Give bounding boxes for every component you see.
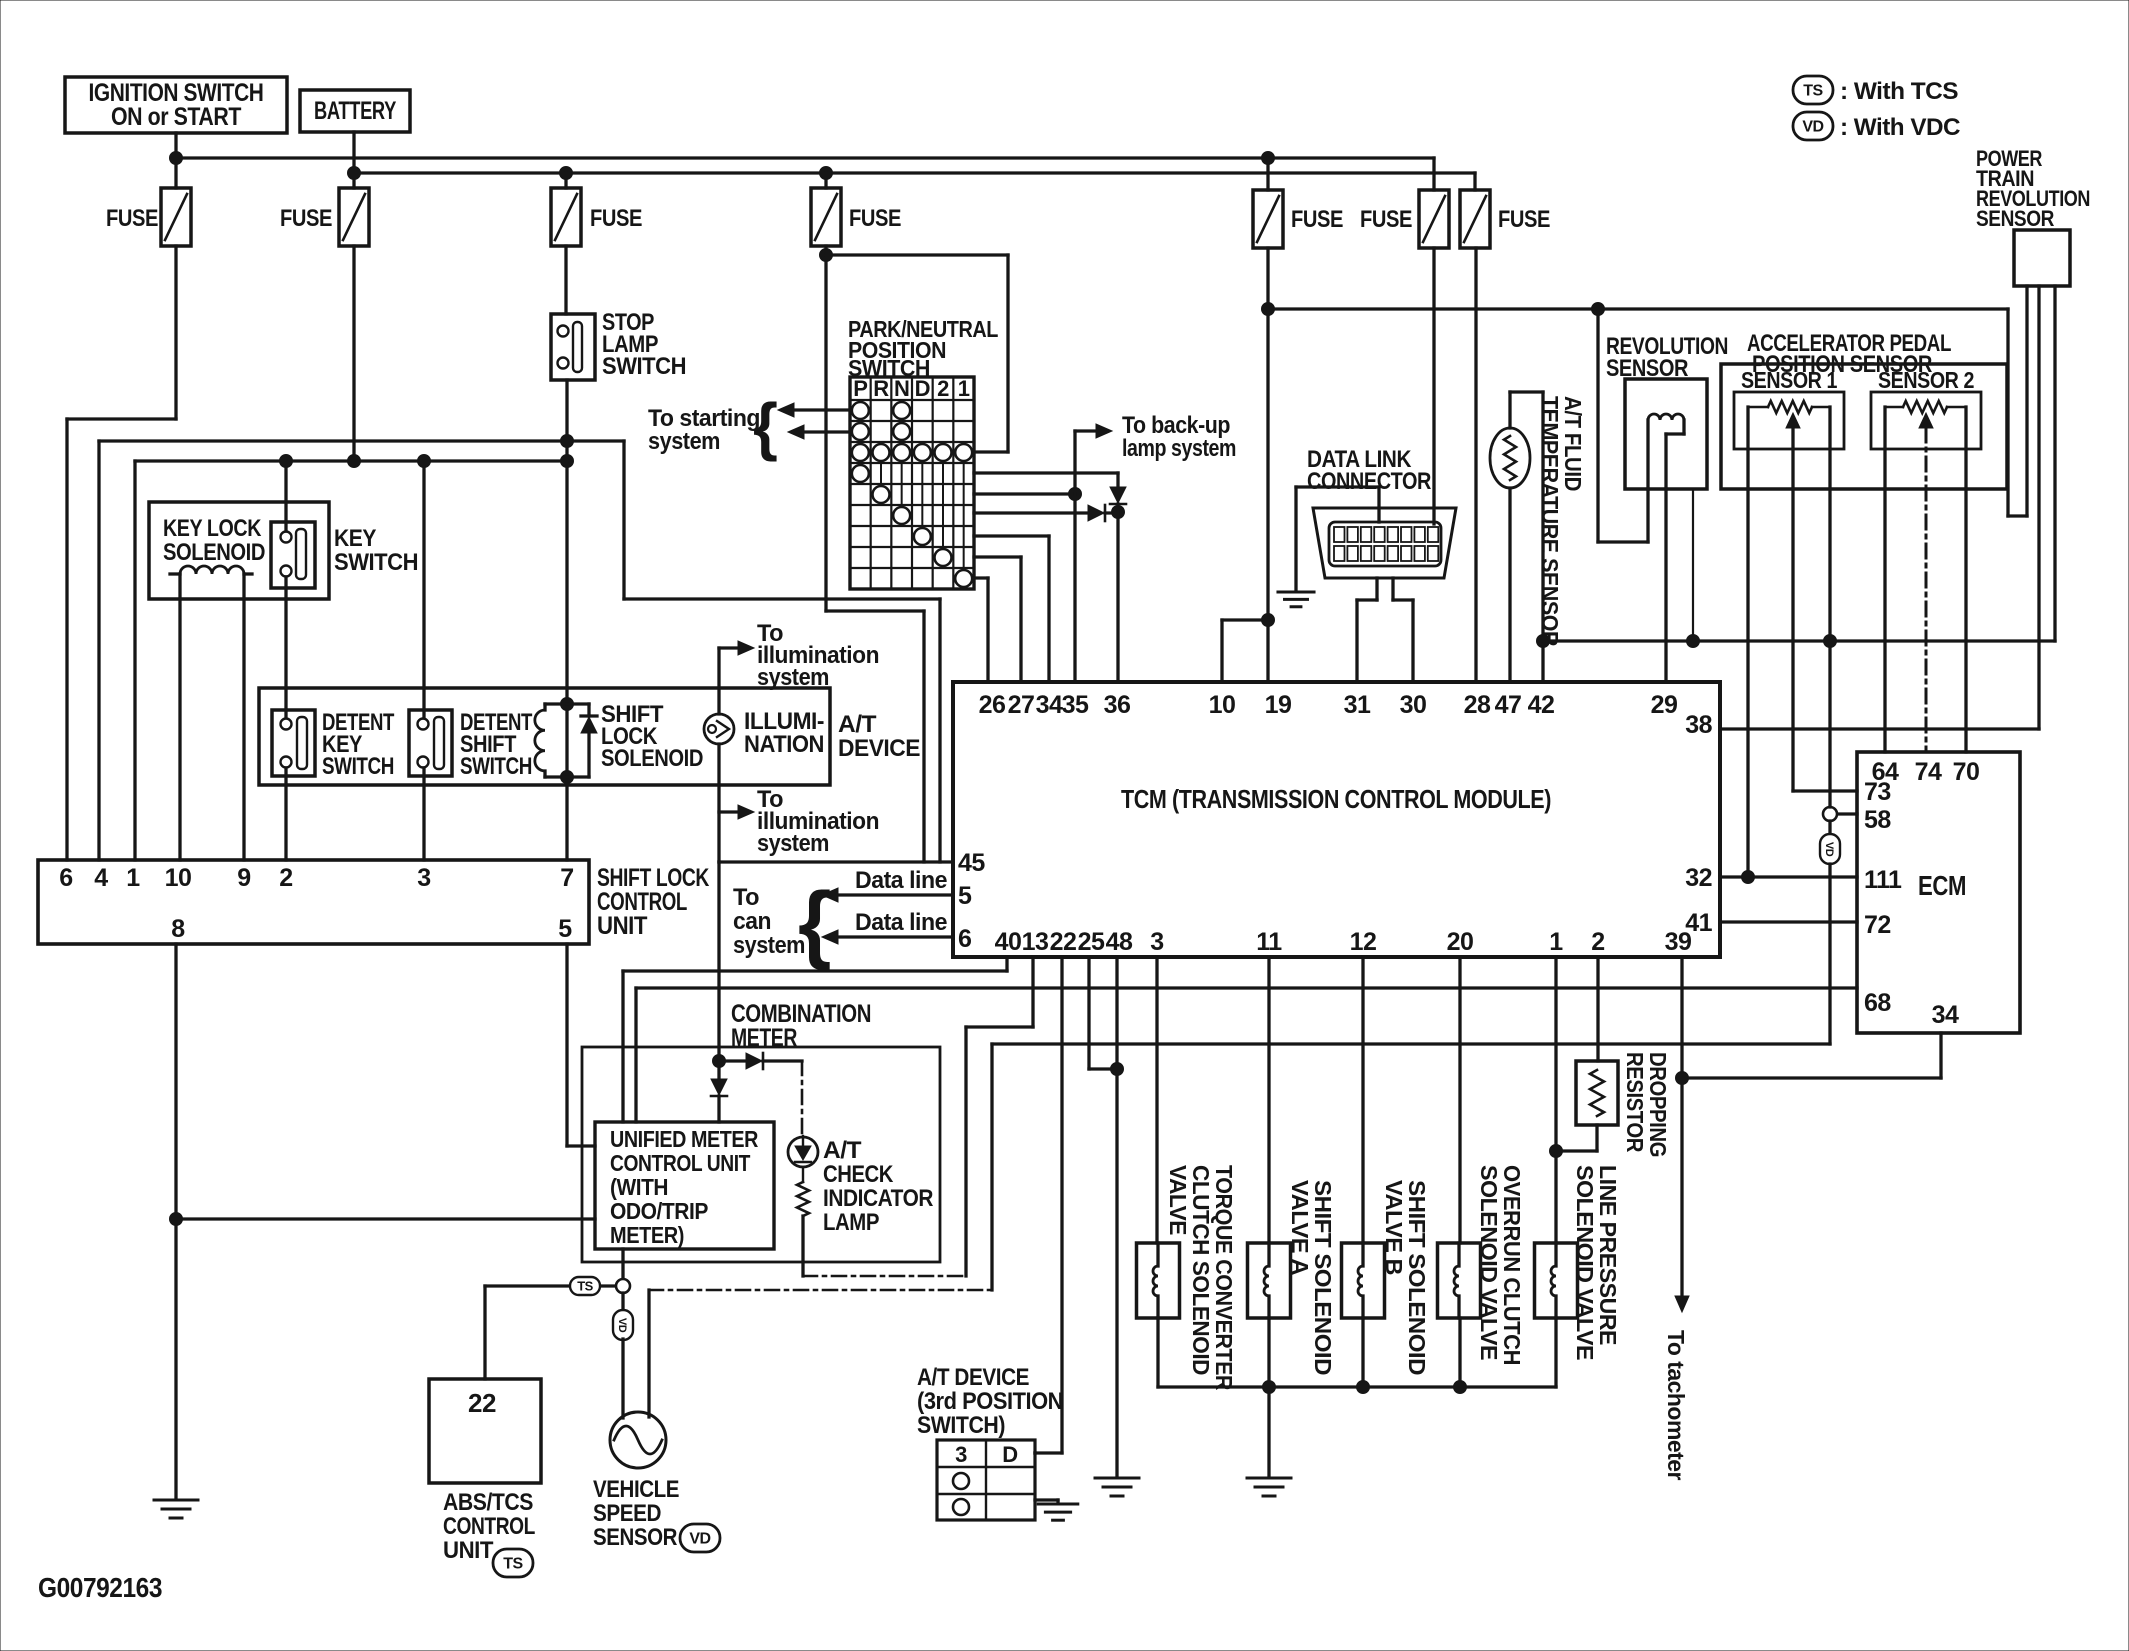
svg-text:26: 26	[979, 691, 1006, 719]
svg-text:D: D	[1002, 1442, 1017, 1467]
svg-text:{: {	[798, 875, 831, 971]
svg-text:VALVE A: VALVE A	[1287, 1180, 1313, 1275]
svg-text:: With VDC: : With VDC	[1840, 114, 1960, 141]
svg-text:2: 2	[1591, 928, 1604, 956]
svg-text:22: 22	[468, 1388, 496, 1418]
svg-text:4: 4	[94, 864, 108, 892]
svg-text:2: 2	[937, 376, 949, 401]
svg-text:system: system	[648, 428, 720, 455]
svg-text:SENSOR 1: SENSOR 1	[1741, 367, 1838, 393]
svg-text:25: 25	[1078, 928, 1105, 956]
svg-text:VEHICLE: VEHICLE	[593, 1476, 679, 1503]
svg-text:6: 6	[958, 925, 971, 953]
svg-text:G00792163: G00792163	[38, 1572, 162, 1603]
svg-text:TCM (TRANSMISSION CONTROL MODU: TCM (TRANSMISSION CONTROL MODULE)	[1121, 784, 1551, 814]
svg-text:SOLENOID: SOLENOID	[601, 745, 703, 772]
svg-text:SENSOR 2: SENSOR 2	[1878, 367, 1974, 393]
svg-text:To tachometer: To tachometer	[1663, 1330, 1689, 1481]
svg-text:35: 35	[1062, 691, 1089, 719]
svg-text:1: 1	[1549, 928, 1563, 956]
svg-text:5: 5	[958, 882, 972, 910]
svg-text:48: 48	[1106, 928, 1133, 956]
svg-text:70: 70	[1953, 758, 1980, 786]
svg-text:31: 31	[1344, 691, 1371, 719]
svg-text:Data line: Data line	[855, 909, 947, 936]
svg-text:111: 111	[1864, 866, 1902, 894]
svg-text:VD: VD	[689, 1531, 710, 1548]
svg-text:FUSE: FUSE	[1360, 206, 1412, 233]
svg-text:72: 72	[1864, 911, 1891, 939]
svg-text:FUSE: FUSE	[849, 205, 901, 232]
svg-text:32: 32	[1685, 864, 1712, 892]
svg-text:42: 42	[1528, 691, 1555, 719]
svg-text:1: 1	[958, 376, 970, 401]
svg-text:19: 19	[1265, 691, 1292, 719]
svg-text:CHECK: CHECK	[823, 1161, 894, 1188]
svg-text:N: N	[894, 376, 909, 401]
svg-text:{: {	[753, 390, 777, 462]
svg-text:11: 11	[1256, 928, 1282, 956]
svg-text:CONNECTOR: CONNECTOR	[1307, 468, 1431, 495]
svg-text:12: 12	[1350, 928, 1377, 956]
svg-text:CONTROL UNIT: CONTROL UNIT	[610, 1150, 750, 1176]
svg-text:FUSE: FUSE	[280, 205, 332, 232]
svg-text:R: R	[873, 376, 889, 401]
svg-text:36: 36	[1104, 691, 1131, 719]
svg-text:SWITCH: SWITCH	[322, 753, 394, 780]
svg-text:10: 10	[165, 864, 192, 892]
svg-text:68: 68	[1864, 989, 1891, 1017]
svg-text:TEMPERATURE SENSOR: TEMPERATURE SENSOR	[1537, 396, 1563, 647]
svg-text:30: 30	[1400, 691, 1427, 719]
svg-text:UNIT: UNIT	[597, 912, 647, 940]
svg-text:SOLENOID VALVE: SOLENOID VALVE	[1476, 1165, 1502, 1360]
svg-text:SENSOR: SENSOR	[593, 1524, 677, 1551]
svg-text:3: 3	[955, 1442, 967, 1467]
svg-text:58: 58	[1864, 806, 1891, 834]
svg-text:FUSE: FUSE	[106, 205, 158, 232]
svg-text:9: 9	[237, 864, 250, 892]
svg-text:LAMP: LAMP	[823, 1209, 879, 1236]
svg-text:system: system	[757, 830, 829, 857]
svg-text:29: 29	[1651, 691, 1678, 719]
svg-text:A/T DEVICE: A/T DEVICE	[917, 1364, 1029, 1391]
svg-text:A/T: A/T	[838, 711, 877, 738]
svg-text:system: system	[757, 664, 829, 691]
svg-text:SWITCH: SWITCH	[602, 353, 686, 380]
svg-text:FUSE: FUSE	[590, 205, 642, 232]
svg-text:Data line: Data line	[855, 867, 947, 894]
svg-text:ODO/TRIP: ODO/TRIP	[610, 1198, 708, 1224]
svg-text:3: 3	[1150, 928, 1163, 956]
svg-text:SPEED: SPEED	[593, 1500, 661, 1527]
svg-text:SOLENOID: SOLENOID	[163, 539, 265, 566]
svg-text:SENSOR: SENSOR	[1976, 206, 2055, 231]
svg-text:ABS/TCS: ABS/TCS	[443, 1489, 533, 1516]
svg-text:34: 34	[1932, 1001, 1959, 1029]
svg-text:SWITCH: SWITCH	[460, 753, 532, 780]
svg-text:(WITH: (WITH	[610, 1174, 668, 1200]
svg-text:40: 40	[995, 928, 1022, 956]
svg-text:VALVE B: VALVE B	[1381, 1180, 1407, 1275]
svg-text:UNIT: UNIT	[443, 1537, 494, 1564]
svg-text:UNIFIED METER: UNIFIED METER	[610, 1126, 759, 1152]
svg-text:28: 28	[1464, 691, 1491, 719]
svg-text:DEVICE: DEVICE	[838, 735, 920, 762]
svg-text:lamp system: lamp system	[1122, 435, 1236, 462]
svg-text:41: 41	[1685, 909, 1712, 937]
svg-text:VD: VD	[1823, 842, 1835, 857]
svg-text:METER): METER)	[610, 1222, 684, 1248]
svg-text:D: D	[915, 376, 930, 401]
svg-text:NATION: NATION	[744, 731, 824, 758]
svg-text:7: 7	[560, 864, 573, 892]
svg-text:2: 2	[279, 864, 292, 892]
svg-text:45: 45	[958, 849, 985, 877]
svg-text:(3rd POSITION: (3rd POSITION	[917, 1388, 1063, 1415]
svg-text:VALVE: VALVE	[1165, 1165, 1191, 1235]
svg-text:KEY: KEY	[334, 525, 376, 552]
svg-text:8: 8	[171, 915, 185, 943]
svg-text:KEY LOCK: KEY LOCK	[163, 515, 262, 542]
svg-text:22: 22	[1050, 928, 1077, 956]
svg-text:system: system	[733, 932, 805, 959]
svg-text:3: 3	[417, 864, 430, 892]
svg-text:34: 34	[1036, 691, 1063, 719]
svg-text:RESISTOR: RESISTOR	[1622, 1052, 1648, 1153]
svg-text:5: 5	[558, 915, 572, 943]
svg-text:ON or START: ON or START	[111, 103, 241, 131]
svg-text:1: 1	[126, 864, 140, 892]
svg-text:27: 27	[1008, 691, 1035, 719]
svg-text:6: 6	[59, 864, 72, 892]
svg-text:TS: TS	[1803, 83, 1823, 100]
svg-text:10: 10	[1209, 691, 1236, 719]
svg-text:74: 74	[1915, 758, 1942, 786]
svg-text:38: 38	[1685, 711, 1712, 739]
svg-text:SWITCH): SWITCH)	[917, 1412, 1005, 1439]
svg-text:73: 73	[1864, 778, 1891, 806]
svg-text:TS: TS	[577, 1279, 593, 1294]
svg-text:SWITCH: SWITCH	[334, 549, 418, 576]
svg-text:ECM: ECM	[1918, 870, 1966, 901]
svg-text:47: 47	[1495, 691, 1522, 719]
svg-text:P: P	[853, 376, 867, 401]
svg-text:VD: VD	[1802, 119, 1823, 136]
svg-text:FUSE: FUSE	[1291, 206, 1343, 233]
svg-text:BATTERY: BATTERY	[314, 97, 397, 125]
svg-text:INDICATOR: INDICATOR	[823, 1185, 933, 1212]
svg-text:13: 13	[1022, 928, 1049, 956]
svg-text:VD: VD	[616, 1318, 628, 1333]
svg-text:SOLENOID VALVE: SOLENOID VALVE	[1572, 1165, 1598, 1360]
svg-text:TS: TS	[503, 1556, 523, 1573]
svg-text:: With TCS: : With TCS	[1840, 78, 1958, 105]
svg-text:CONTROL: CONTROL	[443, 1513, 535, 1540]
svg-text:can: can	[733, 908, 771, 935]
svg-text:FUSE: FUSE	[1498, 206, 1550, 233]
svg-text:To: To	[733, 884, 759, 911]
svg-text:A/T: A/T	[823, 1137, 862, 1164]
svg-text:20: 20	[1447, 928, 1474, 956]
